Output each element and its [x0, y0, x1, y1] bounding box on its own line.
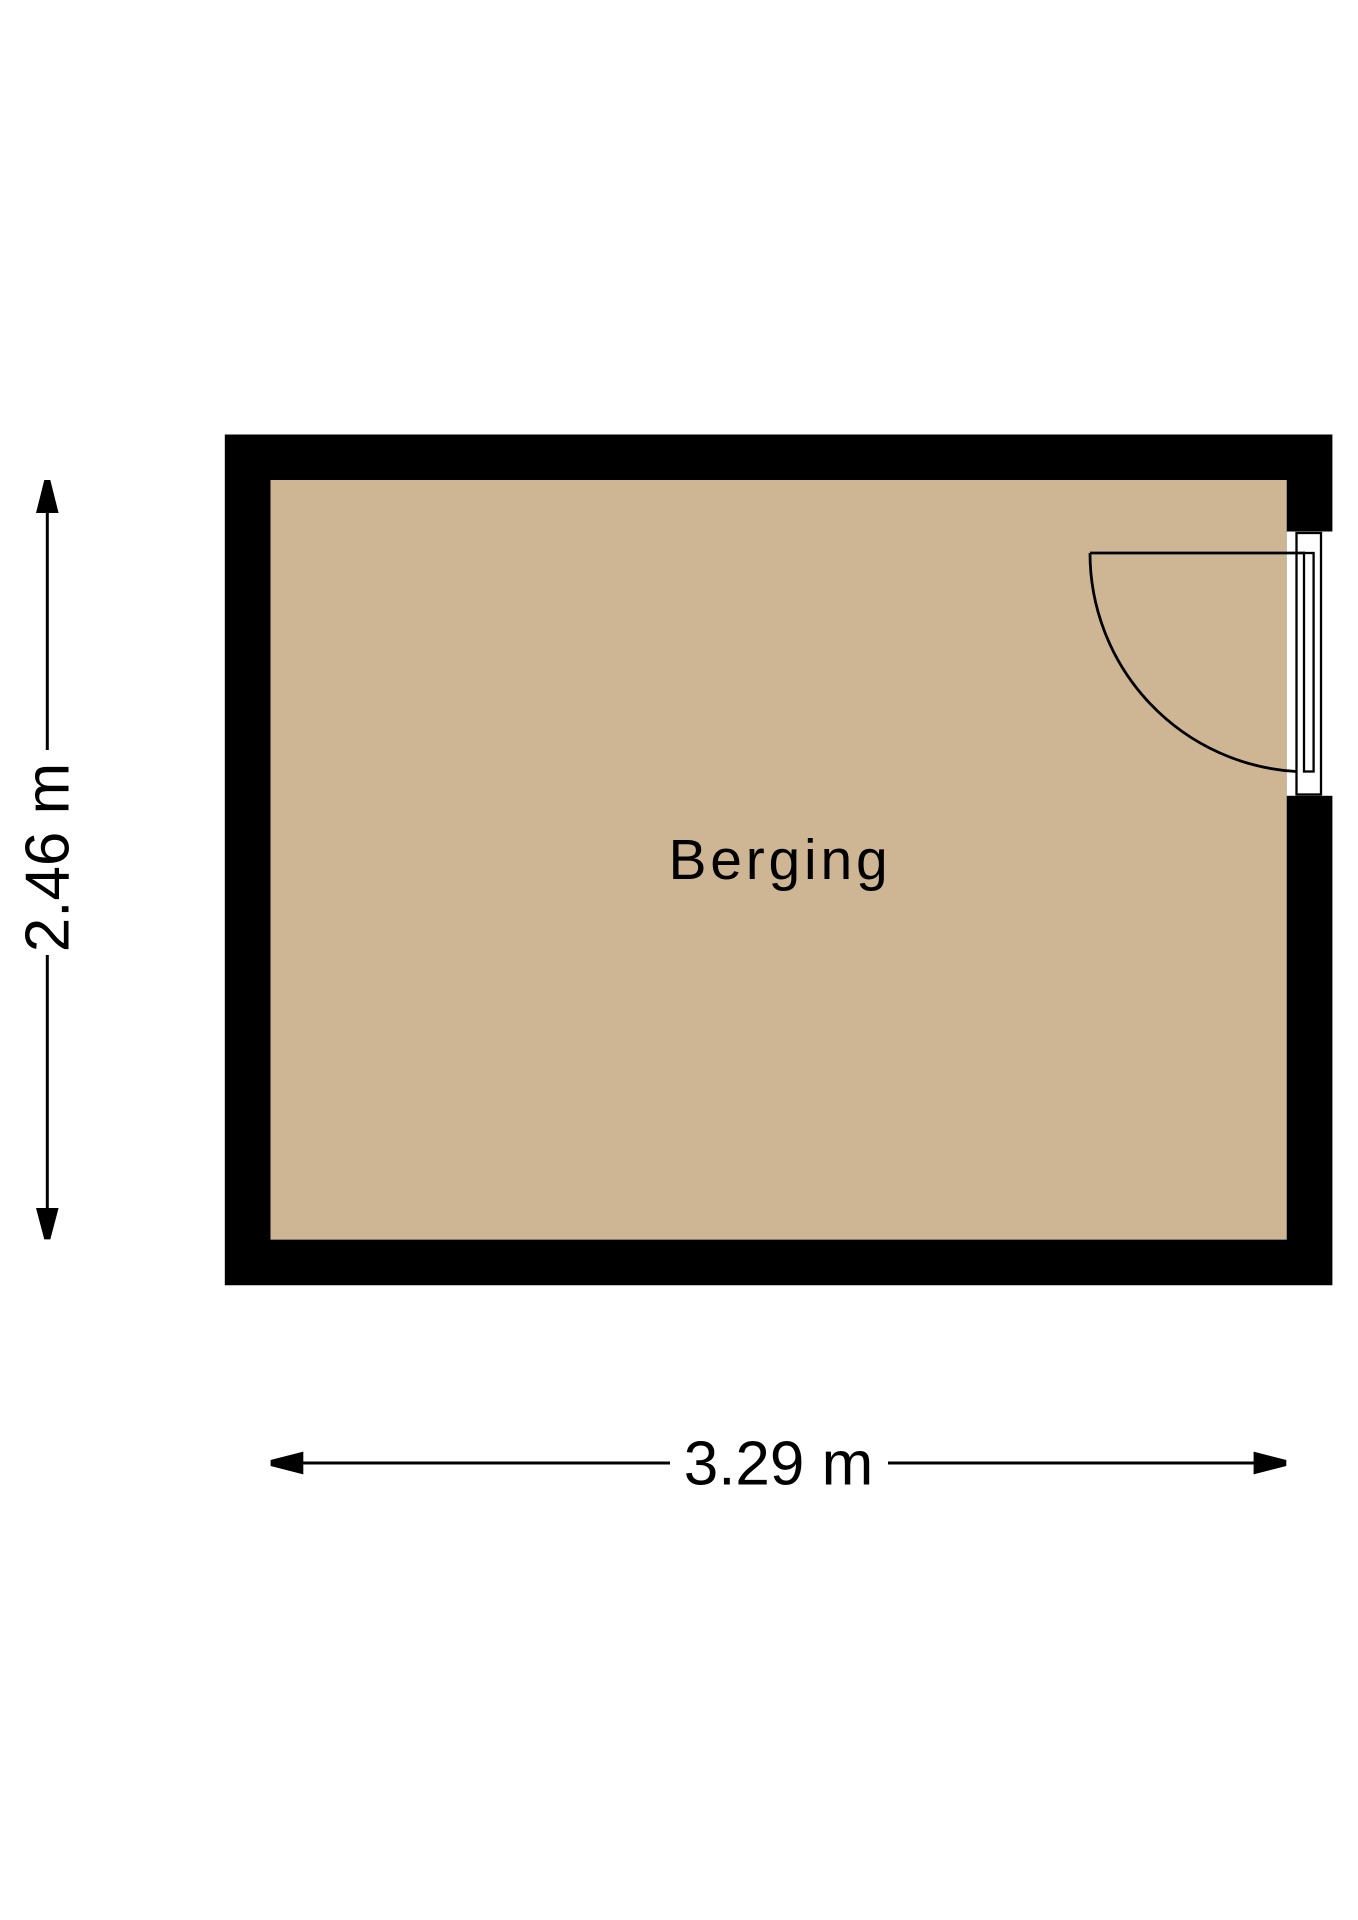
svg-text:3.29 m: 3.29 m [684, 1430, 874, 1499]
svg-text:Berging: Berging [668, 828, 891, 892]
svg-text:2.46 m: 2.46 m [13, 763, 82, 953]
